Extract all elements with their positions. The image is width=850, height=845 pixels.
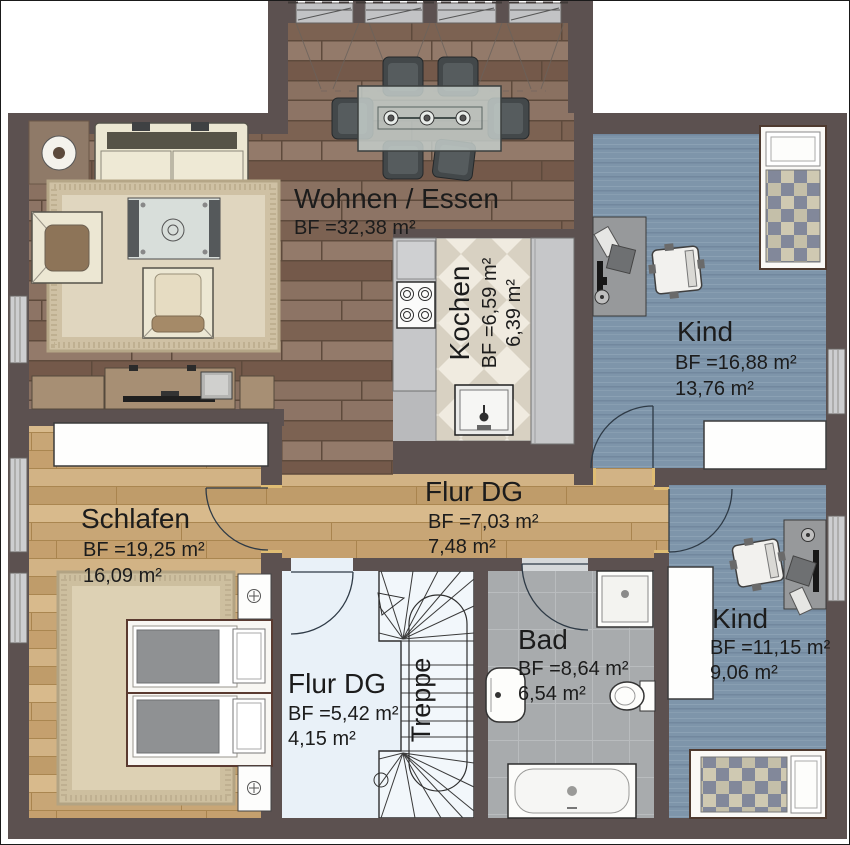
bathtub-icon <box>508 764 636 818</box>
label-bad-area2: 6,54 m² <box>518 683 586 705</box>
label-flur-unten-name: Flur DG <box>288 668 386 699</box>
window-kind-gross-right <box>828 349 845 414</box>
stove-icon <box>397 282 435 328</box>
armchair-bottom <box>143 268 213 338</box>
label-schlafen-area: BF =19,25 m² <box>83 539 205 561</box>
wardrobe-schlafen <box>54 423 268 466</box>
sideboard-kind-gross <box>704 421 826 469</box>
kitchen-sink-icon <box>455 385 513 435</box>
side-table-lamp <box>29 121 89 184</box>
double-bed <box>127 620 272 766</box>
svg-text:Kochen: Kochen <box>444 266 475 361</box>
label-flur-mitte-area2: 7,48 m² <box>428 536 496 558</box>
kitchen-counter-right <box>531 238 574 444</box>
bed-kind-klein <box>690 750 826 818</box>
dining-table <box>358 86 501 151</box>
desk-kind-gross <box>593 217 646 316</box>
nightstand-bottom <box>238 766 271 811</box>
label-flur-unten-area: BF =5,42 m² <box>288 703 399 725</box>
label-flur-mitte-name: Flur DG <box>425 476 523 507</box>
label-kind-klein-area2: 9,06 m² <box>710 662 778 684</box>
label-schlafen-name: Schlafen <box>81 503 190 534</box>
coffee-table <box>128 198 220 259</box>
label-treppe: Treppe <box>406 658 436 743</box>
label-wohnen-area: BF =32,38 m² <box>294 217 416 239</box>
floor-plan-page: Wohnen / Essen BF =32,38 m² Kochen BF =6… <box>0 0 850 845</box>
bed-kind-gross <box>760 126 826 269</box>
window-kind-klein-right <box>828 516 845 601</box>
label-kind-gross-area: BF =16,88 m² <box>675 352 797 374</box>
window-schlafen-left-1 <box>10 458 27 552</box>
label-flur-unten-area2: 4,15 m² <box>288 728 356 750</box>
floor-plan-svg: Wohnen / Essen BF =32,38 m² Kochen BF =6… <box>1 1 849 844</box>
svg-text:Treppe: Treppe <box>406 658 436 743</box>
blanket <box>701 757 787 812</box>
label-kind-klein-area: BF =11,15 m² <box>710 637 831 659</box>
blanket <box>766 170 820 262</box>
label-flur-mitte-area: BF =7,03 m² <box>428 511 539 533</box>
svg-text:BF =6,59 m²: BF =6,59 m² <box>479 257 501 368</box>
svg-text:6,39 m²: 6,39 m² <box>503 279 525 347</box>
toilet-icon <box>610 681 655 711</box>
window-schlafen-left-2 <box>10 573 27 643</box>
desk-kind-klein <box>784 520 826 615</box>
label-schlafen-area2: 16,09 m² <box>83 565 162 587</box>
nightstand-top <box>238 574 271 619</box>
blanket <box>137 630 219 683</box>
pillow <box>233 699 265 753</box>
armchair-left <box>32 212 102 283</box>
label-kind-klein-name: Kind <box>712 603 768 634</box>
label-wohnen-name: Wohnen / Essen <box>294 183 499 214</box>
shower-icon <box>597 571 653 627</box>
label-kind-gross-area2: 13,76 m² <box>675 378 754 400</box>
wardrobe-kind-klein <box>668 567 713 699</box>
window-wohnen-left <box>10 296 27 363</box>
label-bad-name: Bad <box>518 624 568 655</box>
pillow <box>233 629 265 683</box>
label-kind-gross-name: Kind <box>677 316 733 347</box>
blanket <box>137 700 219 753</box>
label-bad-area: BF =8,64 m² <box>518 658 629 680</box>
